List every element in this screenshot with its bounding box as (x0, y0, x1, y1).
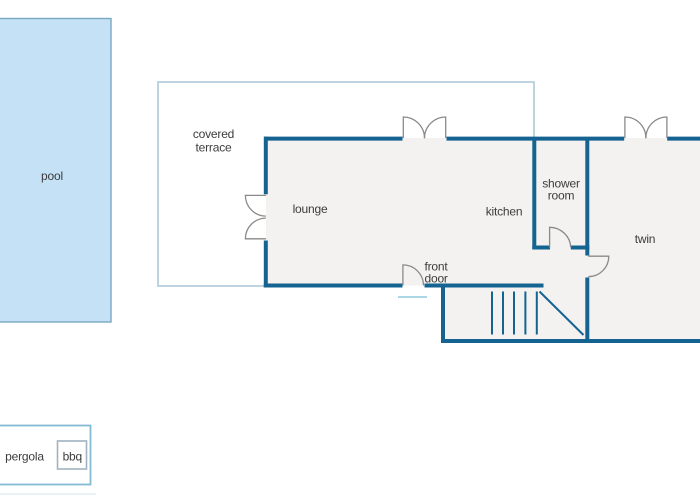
svg-text:terrace: terrace (196, 141, 232, 155)
svg-text:door: door (425, 272, 448, 286)
svg-text:kitchen: kitchen (486, 205, 523, 219)
svg-text:bbq: bbq (63, 450, 82, 464)
svg-text:covered: covered (193, 127, 234, 141)
svg-text:lounge: lounge (293, 202, 328, 216)
svg-text:twin: twin (635, 232, 656, 246)
svg-text:pool: pool (41, 169, 63, 183)
svg-text:pergola: pergola (5, 450, 44, 464)
svg-text:room: room (548, 189, 575, 203)
